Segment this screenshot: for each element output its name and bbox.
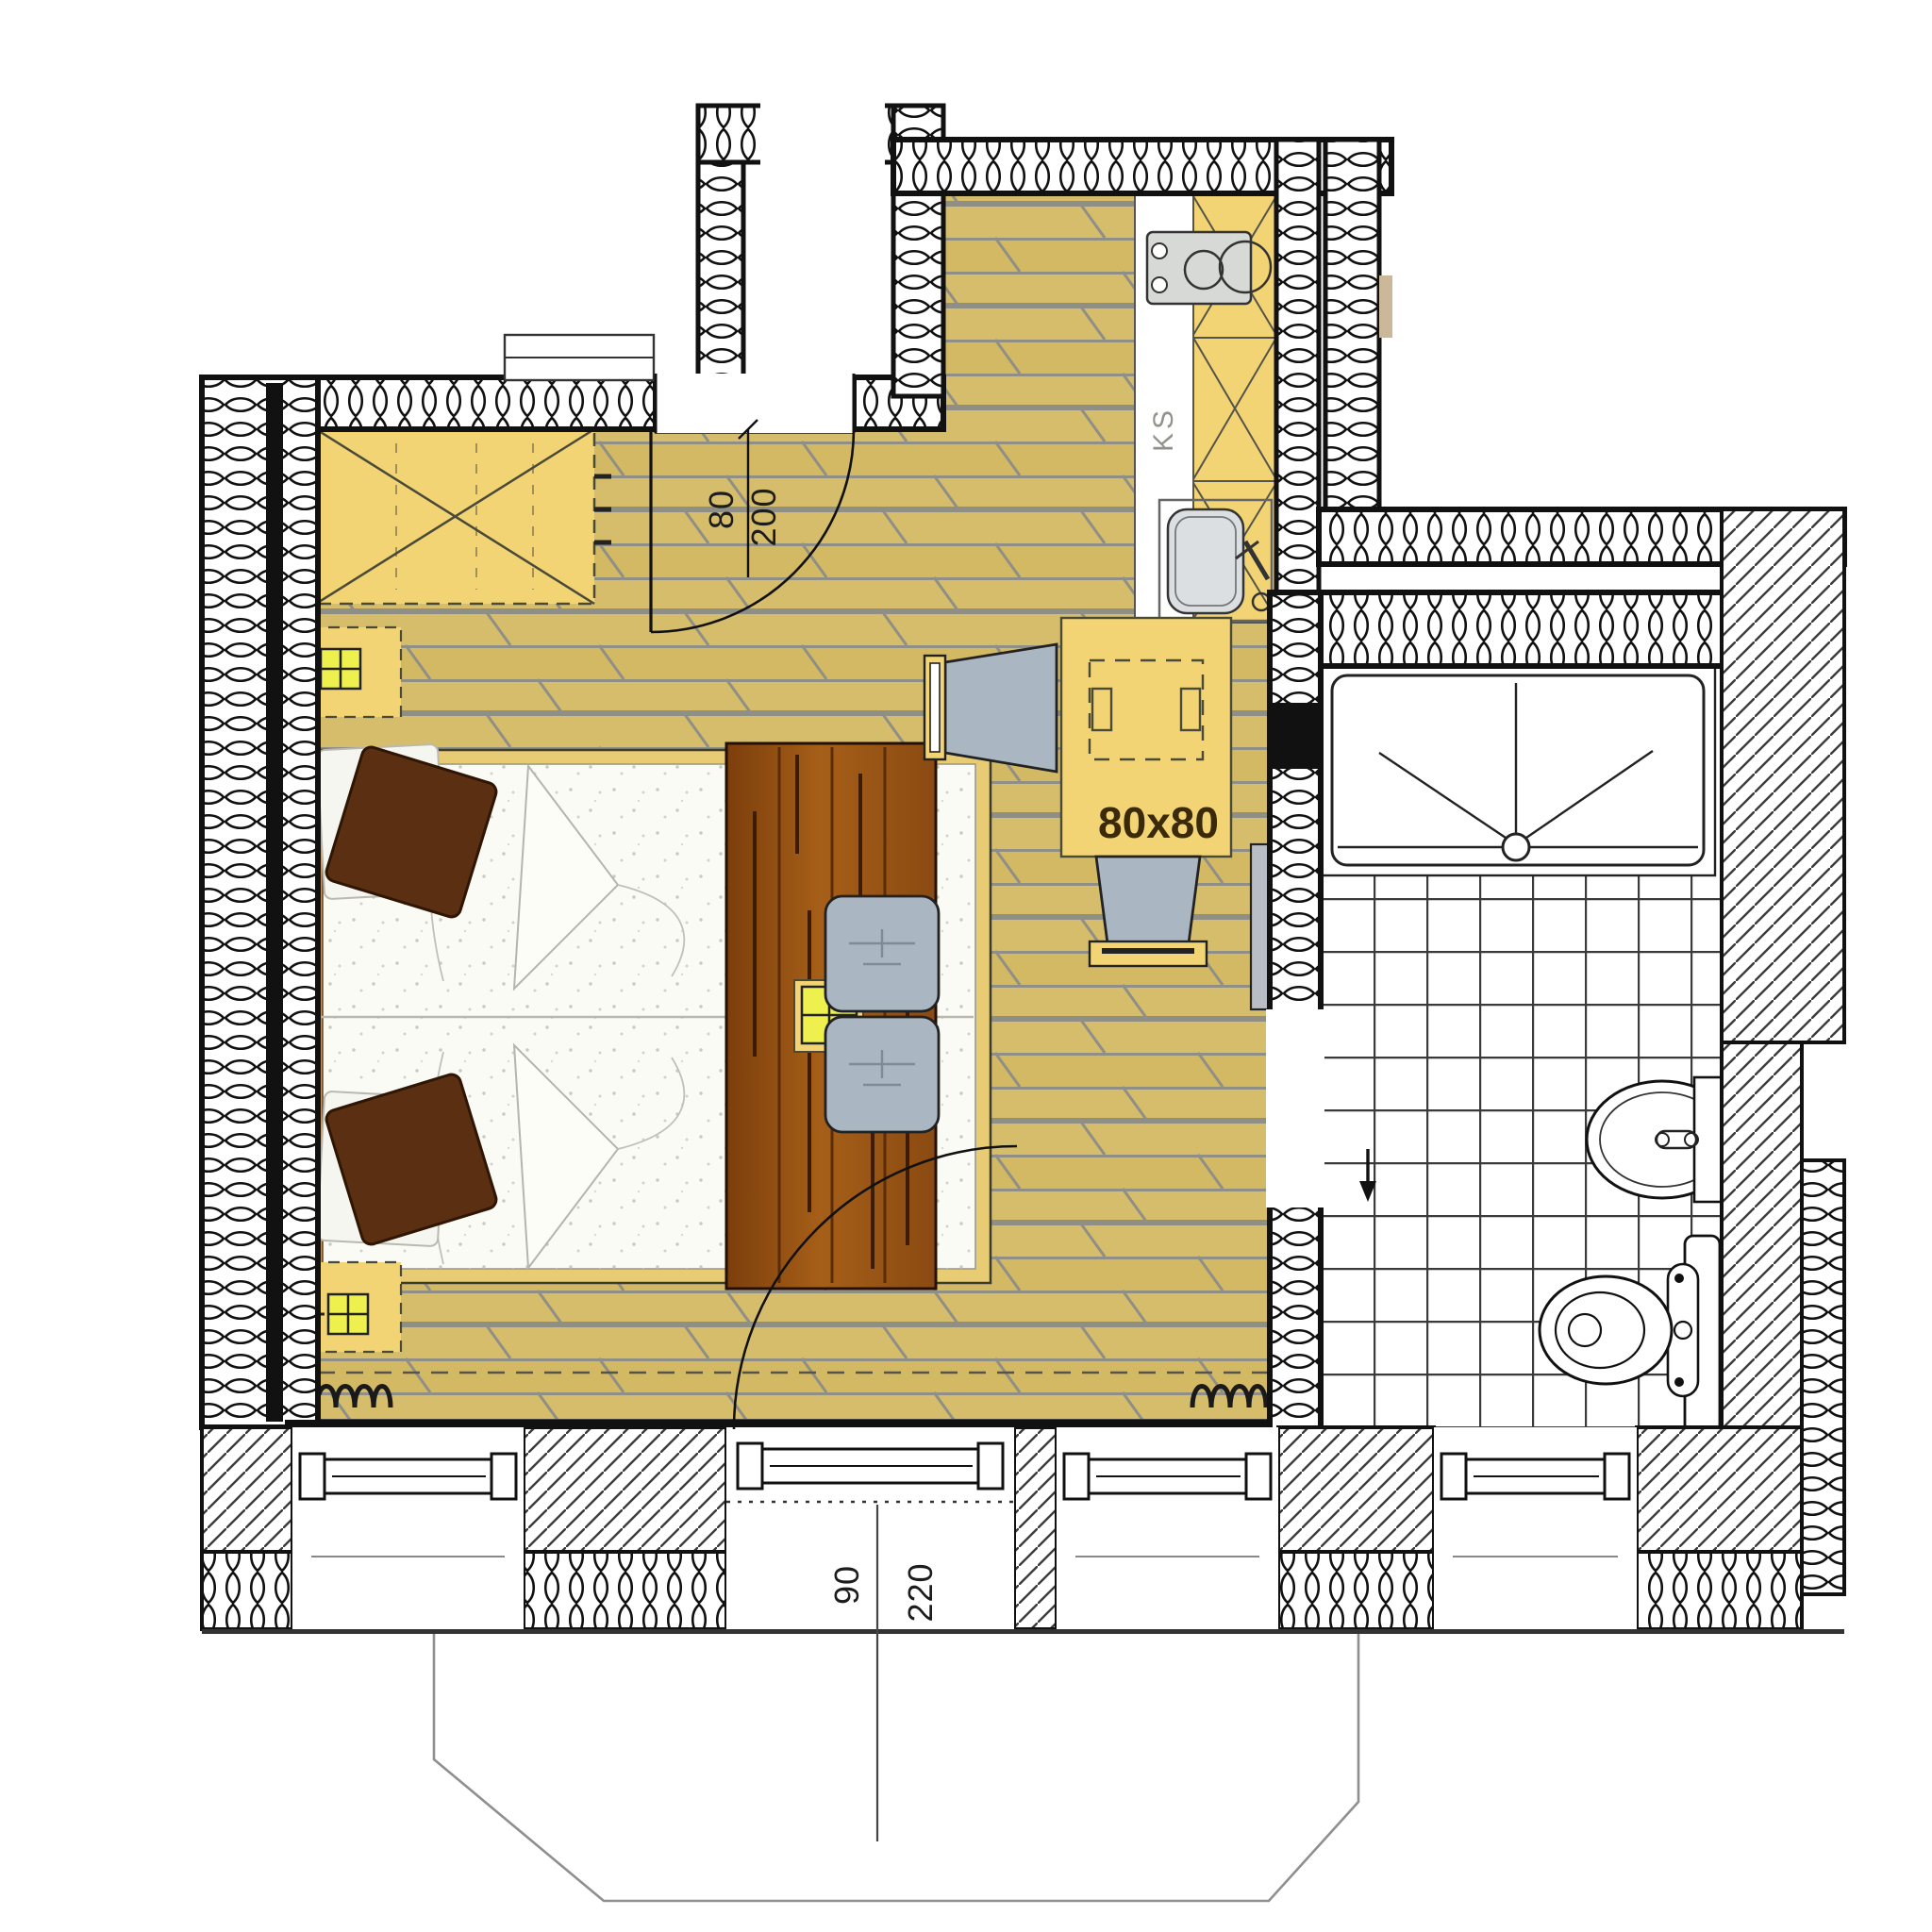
chair-west <box>924 644 1057 772</box>
balcony-door-height-label: 220 <box>901 1562 940 1622</box>
shower-drain <box>1503 834 1529 860</box>
wall-bathroom-left-pier <box>1270 703 1321 769</box>
wall-bottom-outer-line <box>202 1629 1844 1634</box>
window-bottom-left <box>292 1427 524 1629</box>
wall-kitchen-right-outer <box>1325 140 1379 513</box>
floor-plan-drawing: KS <box>0 0 1932 1932</box>
unit-entry-opening <box>760 100 885 166</box>
neighbor-wall-patch <box>1379 275 1392 338</box>
chair-south <box>1090 857 1207 966</box>
balcony-door-width-label: 90 <box>827 1565 866 1605</box>
wall-bathroom-right-outer <box>1802 1160 1844 1594</box>
balcony-door <box>726 1427 1014 1629</box>
window-top <box>505 335 654 380</box>
dining-table: 80x80 <box>1061 618 1231 857</box>
shower-tray <box>1321 666 1715 875</box>
wall-kitchen-right-inner <box>1276 140 1319 596</box>
fridge-label: KS <box>1148 407 1179 452</box>
window-bottom-middle <box>1057 1427 1278 1629</box>
wall-left-core <box>266 383 283 1422</box>
window-bathroom <box>1434 1427 1637 1629</box>
wall-bath-top-inner <box>1319 592 1740 666</box>
kitchenette: KS <box>1135 193 1276 623</box>
entry-door-width-label: 80 <box>702 490 741 529</box>
vestibule-floor <box>743 162 893 377</box>
wall-left <box>202 377 318 1427</box>
bathroom-door-opening <box>1266 1009 1324 1207</box>
table-size-label: 80x80 <box>1098 798 1219 847</box>
nightstand-bottom <box>309 1262 401 1352</box>
floor-plan-canvas: KS <box>0 0 1932 1932</box>
wardrobe <box>316 429 611 604</box>
entry-door-height-label: 200 <box>744 487 783 546</box>
wall-bathroom-right-upper <box>1722 509 1844 1042</box>
